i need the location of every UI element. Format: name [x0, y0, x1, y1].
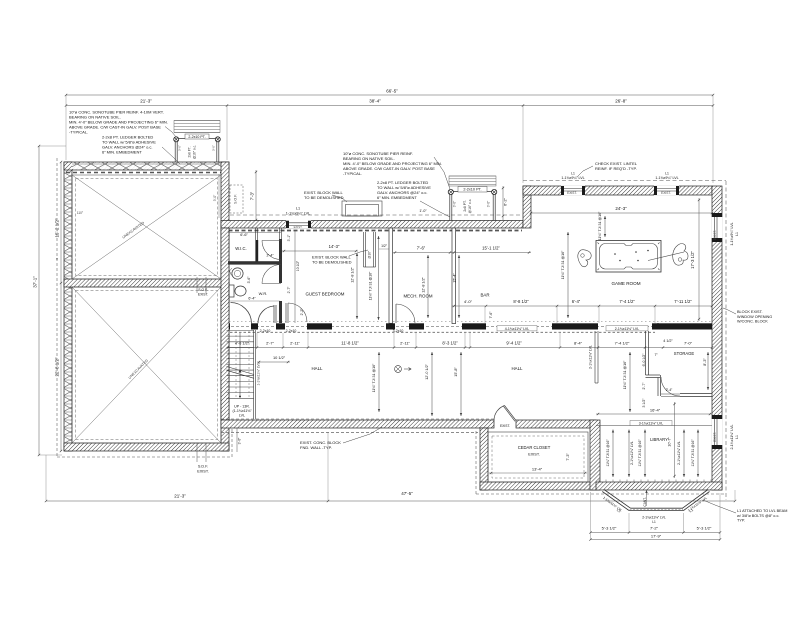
svg-text:BAR: BAR	[480, 293, 489, 298]
svg-text:2-1¾x11⅛” LVL: 2-1¾x11⅛” LVL	[677, 441, 681, 465]
svg-text:LIBRARY: LIBRARY	[650, 437, 668, 442]
svg-text:HALL: HALL	[312, 366, 324, 371]
svg-text:15’-1 1/2”: 15’-1 1/2”	[482, 246, 500, 251]
svg-text:UP - 13R.: UP - 13R.	[234, 405, 250, 409]
svg-text:1-1¾x11⅛” LVL: 1-1¾x11⅛” LVL	[257, 362, 261, 385]
svg-text:24’-3”: 24’-3”	[615, 206, 627, 211]
svg-text:17’-9”: 17’-9”	[651, 534, 662, 539]
svg-text:2-1¾x11⅛” LVL: 2-1¾x11⅛” LVL	[589, 345, 593, 369]
svg-text:2’-11”: 2’-11”	[400, 341, 410, 346]
svg-text:38’-4”: 38’-4”	[369, 99, 381, 104]
svg-text:47’-5”: 47’-5”	[401, 491, 413, 496]
svg-text:LVL: LVL	[239, 414, 245, 418]
svg-text:8’-8 1/2”: 8’-8 1/2”	[513, 299, 529, 304]
svg-text:GAME ROOM: GAME ROOM	[611, 281, 640, 286]
svg-text:7’-3”: 7’-3”	[250, 191, 255, 200]
svg-text:5’-3 1/2”: 5’-3 1/2”	[602, 526, 617, 531]
svg-text:2-2x10: 2-2x10	[260, 329, 271, 333]
svg-text:2’-4”: 2’-4”	[266, 254, 274, 258]
svg-text:7’-2”: 7’-2”	[650, 526, 659, 531]
svg-text:12’-8 1/2”: 12’-8 1/2”	[351, 266, 355, 282]
svg-text:(1-1¾x11⅛”: (1-1¾x11⅛”	[232, 409, 252, 413]
svg-text:2-1¾x11⅛” LVL: 2-1¾x11⅛” LVL	[642, 516, 666, 520]
svg-text:5’-3 1/2”: 5’-3 1/2”	[697, 526, 712, 531]
svg-text:11⅛” TJI 31 @16”: 11⅛” TJI 31 @16”	[691, 439, 695, 466]
svg-text:EXIST.: EXIST.	[197, 470, 209, 474]
svg-text:11⅛” TJI 31 @16”: 11⅛” TJI 31 @16”	[372, 363, 376, 392]
svg-text:2x8 PT.: 2x8 PT.	[463, 200, 467, 211]
svg-text:EXIST.: EXIST.	[567, 191, 577, 195]
svg-text:@16” o.c.: @16” o.c.	[193, 145, 197, 159]
svg-text:2’-2”: 2’-2”	[300, 309, 304, 316]
svg-text:6” MIN. EMBEDMENT: 6” MIN. EMBEDMENT	[377, 195, 417, 200]
svg-text:21’-3”: 21’-3”	[174, 494, 186, 499]
svg-text:HALL: HALL	[512, 366, 524, 371]
svg-text:4’-0”: 4’-0”	[464, 299, 473, 304]
svg-text:4-1¾x11⅛” LVL: 4-1¾x11⅛” LVL	[505, 327, 529, 331]
svg-text:6’-4”: 6’-4”	[248, 297, 256, 301]
svg-text:8’-3”: 8’-3”	[703, 358, 707, 366]
svg-text:7’-0”: 7’-0”	[684, 341, 693, 346]
svg-text:L1: L1	[571, 172, 575, 176]
svg-text:11⅛” TJI 31 @16”: 11⅛” TJI 31 @16”	[369, 271, 373, 300]
svg-text:11⅛” TJI 31 @16”: 11⅛” TJI 31 @16”	[638, 439, 642, 466]
svg-text:3’-0”: 3’-0”	[238, 438, 242, 445]
svg-text:W.I.C.: W.I.C.	[235, 246, 246, 251]
svg-text:CEDAR CLOSET: CEDAR CLOSET	[518, 445, 551, 450]
svg-text:1-1¾x9¼” LVL: 1-1¾x9¼” LVL	[655, 176, 678, 180]
svg-text:EXIST.: EXIST.	[713, 432, 717, 442]
svg-text:11⅛” TJI 31 @16”: 11⅛” TJI 31 @16”	[623, 360, 627, 389]
svg-text:15’-4”: 15’-4”	[453, 273, 457, 283]
svg-text:EXIST.: EXIST.	[294, 225, 303, 229]
svg-text:3’-6”: 3’-6”	[247, 277, 251, 284]
svg-text:TO BE DEMOLISHED: TO BE DEMOLISHED	[304, 195, 344, 200]
svg-text:12’-0 1/2”: 12’-0 1/2”	[425, 363, 429, 379]
svg-text:6” MIN. EMBEDMENT: 6” MIN. EMBEDMENT	[102, 150, 142, 155]
svg-text:STORAGE: STORAGE	[674, 351, 695, 356]
svg-text:3 1/2”: 3 1/2”	[642, 398, 646, 408]
svg-text:11’-8 1/2”: 11’-8 1/2”	[341, 341, 359, 346]
svg-text:7’-6”: 7’-6”	[417, 246, 426, 251]
svg-text:4 1/2”: 4 1/2”	[663, 339, 673, 343]
svg-text:7’-11 1/2”: 7’-11 1/2”	[674, 299, 692, 304]
svg-text:2-1¾x11⅛” LVL: 2-1¾x11⅛” LVL	[630, 441, 634, 465]
svg-text:BLOCK EXIST.: BLOCK EXIST.	[737, 310, 763, 314]
svg-text:2-2x10 PT.: 2-2x10 PT.	[188, 135, 205, 139]
svg-text:1/2”: 1/2”	[381, 244, 387, 248]
svg-text:7’-4 1/2”: 7’-4 1/2”	[619, 299, 635, 304]
svg-text:L1: L1	[652, 520, 656, 524]
svg-text:14’-3”: 14’-3”	[329, 244, 340, 249]
svg-text:TYP.: TYP.	[737, 519, 745, 523]
svg-text:2’-4”: 2’-4”	[666, 388, 673, 392]
svg-text:EXIST.: EXIST.	[713, 230, 717, 240]
svg-text:GUEST BEDROOM: GUEST BEDROOM	[306, 292, 345, 297]
svg-text:8’-4”: 8’-4”	[574, 341, 583, 346]
svg-text:2’-7”: 2’-7”	[642, 382, 646, 390]
svg-text:1-1¾x9¼” LVL: 1-1¾x9¼” LVL	[561, 176, 584, 180]
svg-text:2-1¾x11⅛” LVL: 2-1¾x11⅛” LVL	[730, 424, 734, 449]
svg-text:10’-7”: 10’-7”	[668, 437, 672, 447]
svg-text:9’-4 1/2”: 9’-4 1/2”	[506, 341, 522, 346]
svg-text:2-2x10: 2-2x10	[286, 329, 297, 333]
svg-text:W.R.: W.R.	[259, 291, 268, 296]
svg-text:EXIST.: EXIST.	[500, 424, 510, 428]
svg-text:7’-3”: 7’-3”	[566, 453, 570, 461]
svg-text:L1: L1	[735, 232, 739, 236]
svg-text:6’-2”: 6’-2”	[503, 197, 508, 206]
svg-text:3’-0”: 3’-0”	[213, 195, 217, 201]
svg-text:L1: L1	[665, 172, 669, 176]
svg-text:2’-7”: 2’-7”	[287, 287, 291, 294]
svg-text:w/ 3/8”ø BOLTS @8” o.c.: w/ 3/8”ø BOLTS @8” o.c.	[737, 514, 779, 518]
svg-text:3’-0”: 3’-0”	[453, 201, 457, 207]
svg-text:6’-4”: 6’-4”	[572, 299, 581, 304]
svg-text:2’-7”: 2’-7”	[266, 341, 274, 346]
svg-text:3-2x10: 3-2x10	[393, 329, 404, 333]
svg-text:EXIST.: EXIST.	[528, 453, 540, 457]
svg-text:2-1¾x11⅛” LVL: 2-1¾x11⅛” LVL	[615, 327, 639, 331]
svg-text:EXIST.: EXIST.	[198, 293, 208, 297]
svg-text:@16”: @16”	[368, 251, 372, 259]
svg-text:MECH. ROOM: MECH. ROOM	[403, 294, 432, 299]
svg-text:1’-0”: 1’-0”	[419, 209, 427, 213]
svg-text:4’-6 1/2”: 4’-6 1/2”	[235, 341, 250, 346]
svg-text:7’-4 1/2”: 7’-4 1/2”	[615, 341, 630, 346]
svg-text:37’-1”: 37’-1”	[33, 276, 38, 288]
svg-text:S.O.F.: S.O.F.	[234, 194, 238, 204]
svg-text:13’-4”: 13’-4”	[532, 467, 543, 472]
svg-text:3-1¾x11⅛” LVL: 3-1¾x11⅛” LVL	[639, 422, 663, 426]
svg-text:110°: 110°	[77, 211, 84, 215]
svg-text:8’-3 1/2”: 8’-3 1/2”	[442, 341, 458, 346]
svg-text:-TYPICAL.: -TYPICAL.	[343, 171, 362, 176]
svg-text:7’-6”: 7’-6”	[489, 312, 493, 319]
svg-text:6’-0 1/2”: 6’-0 1/2”	[642, 353, 646, 367]
svg-text:10 1/2”: 10 1/2”	[273, 355, 286, 360]
svg-text:TO BE DEMOLISHED: TO BE DEMOLISHED	[312, 260, 352, 265]
svg-text:L1: L1	[735, 435, 739, 439]
svg-text:11⅛” TJI 31 @16”: 11⅛” TJI 31 @16”	[606, 439, 610, 466]
svg-text:11⅛” TJI 31 @16”: 11⅛” TJI 31 @16”	[561, 250, 565, 279]
svg-text:12’-8 1/2”: 12’-8 1/2”	[422, 276, 426, 292]
svg-text:10 1/2”: 10 1/2”	[296, 261, 300, 271]
svg-text:EXIST.: EXIST.	[661, 191, 671, 195]
svg-text:17’-3 1/2”: 17’-3 1/2”	[690, 251, 695, 269]
svg-text:W/CONC. BLOCK: W/CONC. BLOCK	[737, 320, 768, 324]
svg-text:21’-3”: 21’-3”	[140, 99, 152, 104]
svg-text:2-2x10 PT.: 2-2x10 PT.	[463, 188, 481, 192]
svg-text:2’-11”: 2’-11”	[290, 341, 300, 346]
svg-text:FND. WALL -TYP.: FND. WALL -TYP.	[300, 445, 332, 450]
svg-text:-TYPICAL.: -TYPICAL.	[69, 130, 88, 135]
svg-text:L1: L1	[296, 207, 300, 211]
svg-text:66’-5”: 66’-5”	[386, 89, 398, 94]
svg-text:16’-4”: 16’-4”	[650, 408, 661, 413]
svg-text:S.O.F.: S.O.F.	[198, 288, 207, 292]
svg-text:2x8 PT.: 2x8 PT.	[188, 146, 192, 157]
svg-text:S.D.F.: S.D.F.	[198, 465, 208, 469]
svg-text:REINF. IF REQ’D -TYP.: REINF. IF REQ’D -TYP.	[595, 166, 637, 171]
svg-text:1-1¾x9¼” LVL: 1-1¾x9¼” LVL	[286, 212, 311, 216]
svg-text:3’-0”: 3’-0”	[212, 145, 216, 151]
svg-text:WINDOW OPENING: WINDOW OPENING	[737, 315, 772, 319]
svg-text:3’-1”: 3’-1”	[287, 235, 291, 242]
svg-text:6’-6”: 6’-6”	[240, 233, 248, 237]
svg-text:3’-0”: 3’-0”	[487, 201, 491, 207]
svg-text:15’-8”: 15’-8”	[454, 367, 458, 377]
svg-text:L1 ATTACHED TO LVL BEAM: L1 ATTACHED TO LVL BEAM	[737, 509, 787, 513]
svg-text:11⅛” TJI 31 @16”: 11⅛” TJI 31 @16”	[598, 211, 602, 240]
svg-text:3’-0”: 3’-0”	[178, 145, 182, 151]
svg-text:@16” o.c.: @16” o.c.	[468, 199, 472, 214]
svg-text:1-1¾x9¼” LVL: 1-1¾x9¼” LVL	[730, 222, 734, 245]
svg-text:26’-8”: 26’-8”	[615, 99, 627, 104]
